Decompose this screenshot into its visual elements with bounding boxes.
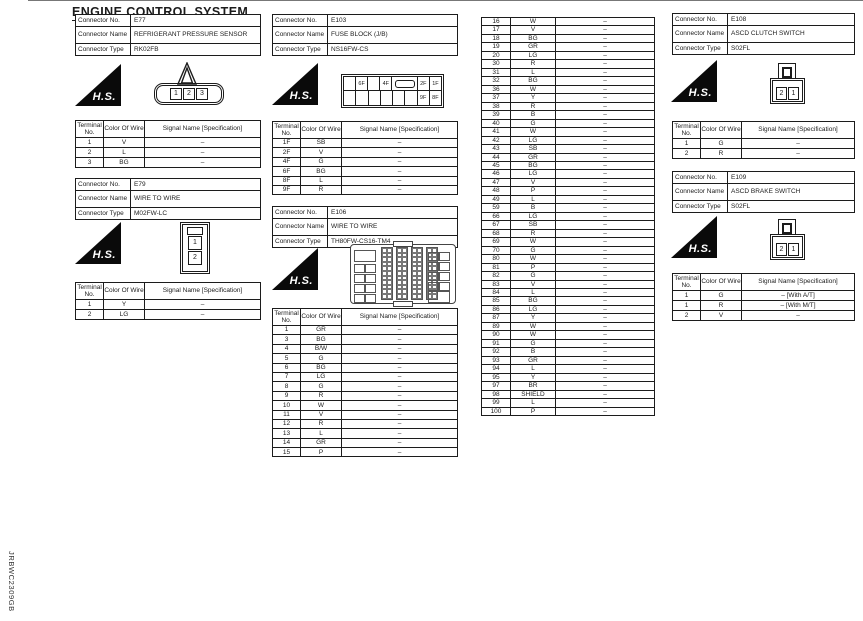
wire-color-header: Color Of Wire <box>701 274 742 291</box>
connector-name-value: ASCD BRAKE SWITCH <box>728 184 855 201</box>
terminal-table-e106-continued: 16W–17V–18BG–19GR–20LG–30R–31L–32BG–36W–… <box>481 17 655 416</box>
signal-name-header: Signal Name [Specification] <box>342 122 458 139</box>
connector-name-label: Connector Name <box>76 191 131 208</box>
terminal-no-cell: 46 <box>482 170 511 178</box>
terminal-no-cell: 92 <box>482 348 511 356</box>
fuse-row-top: 6F4F2F1F <box>344 77 441 91</box>
signal-cell: – <box>556 136 655 144</box>
connector-header-e77: Connector No. E77 Connector Name REFRIGE… <box>75 14 261 56</box>
wire-color-cell: B <box>511 111 556 119</box>
terminal-table-e109: Terminal No. Color Of Wire Signal Name [… <box>672 273 855 321</box>
wire-color-cell: LG <box>511 136 556 144</box>
wire-color-cell: W <box>511 128 556 136</box>
signal-cell: – <box>342 410 458 419</box>
wire-color-cell: Y <box>511 314 556 322</box>
connector-no-label: Connector No. <box>273 15 328 27</box>
table-row: 3BG– <box>273 335 458 344</box>
wire-color-cell: G <box>301 354 342 363</box>
terminal-no-cell: 40 <box>482 119 511 127</box>
signal-cell: – <box>342 176 458 185</box>
grid-cavity <box>428 252 452 291</box>
terminal-no-cell: 43 <box>482 145 511 153</box>
fuse-cavity-label: 1F <box>430 77 441 91</box>
fuse-cavity-label: 8F <box>430 91 441 105</box>
table-row: 41W– <box>482 128 655 136</box>
terminal-no-cell: 90 <box>482 331 511 339</box>
wire-color-cell: LG <box>511 170 556 178</box>
table-row: 4B/W– <box>273 344 458 353</box>
table-row: 7LG– <box>273 372 458 381</box>
table-row: 44GR– <box>482 153 655 161</box>
signal-cell: – <box>556 195 655 203</box>
signal-name-header: Signal Name [Specification] <box>742 274 855 291</box>
connector-type-label: Connector Type <box>76 44 131 56</box>
terminal-no-cell: 42 <box>482 136 511 144</box>
terminal-no-cell: 17 <box>482 26 511 34</box>
terminal-no-cell: 45 <box>482 161 511 169</box>
grid-cavity <box>354 274 365 283</box>
signal-cell: – <box>556 43 655 51</box>
table-row: 1V– <box>76 138 261 148</box>
signal-cell: – <box>556 170 655 178</box>
table-row: 69W– <box>482 238 655 246</box>
cavity-label: 1 <box>170 88 182 100</box>
wire-color-cell: LG <box>104 310 145 320</box>
signal-cell: – <box>342 448 458 457</box>
fuse-cavity <box>368 77 380 91</box>
signal-cell: – <box>145 138 261 148</box>
table-row: 47V– <box>482 178 655 186</box>
wire-color-cell: BG <box>104 158 145 168</box>
table-row: 66LG– <box>482 212 655 220</box>
signal-cell: – <box>556 339 655 347</box>
terminal-no-cell: 2 <box>673 149 701 159</box>
wire-color-cell: BG <box>511 34 556 42</box>
fuse-cavity <box>356 91 368 105</box>
fuse-cavity-label: 4F <box>380 77 392 91</box>
table-row: 98SHIELD– <box>482 390 655 398</box>
hs-logo-text: H.S. <box>290 275 313 287</box>
table-row: 40G– <box>482 119 655 127</box>
table-row: 2FV– <box>273 148 458 157</box>
fuse-cavity-label: 2F <box>418 77 430 91</box>
connector-no-value: E106 <box>328 207 458 219</box>
cavity-column: 12 <box>188 236 202 265</box>
grid-cavity <box>354 264 365 273</box>
terminal-no-cell: 6F <box>273 167 301 176</box>
table-row: 1G– [With A/T] <box>673 291 855 301</box>
signal-cell: – <box>556 297 655 305</box>
signal-cell: – <box>742 139 855 149</box>
hs-logo-text: H.S. <box>290 90 313 102</box>
wire-color-cell: W <box>511 331 556 339</box>
connector-name-value: ASCD CLUTCH SWITCH <box>728 26 855 43</box>
signal-cell: – <box>342 185 458 194</box>
signal-cell: – <box>342 326 458 335</box>
table-row: 59B– <box>482 204 655 212</box>
grid-cavity <box>381 247 393 300</box>
wire-color-header: Color Of Wire <box>701 122 742 139</box>
cavity-row: 123 <box>156 85 222 103</box>
hs-logo-text: H.S. <box>93 249 116 261</box>
wire-color-cell: SB <box>511 145 556 153</box>
wire-color-cell: BG <box>301 363 342 372</box>
wire-color-cell: SHIELD <box>511 390 556 398</box>
cavity-label: 1 <box>788 87 799 100</box>
connector-drawing-e77: 123 <box>147 62 227 108</box>
table-row: 32BG– <box>482 77 655 85</box>
wire-color-cell: SB <box>301 139 342 148</box>
connector-name-value: FUSE BLOCK (J/B) <box>328 27 458 44</box>
terminal-no-cell: 67 <box>482 221 511 229</box>
signal-cell: – <box>342 419 458 428</box>
terminal-no-cell: 84 <box>482 289 511 297</box>
wire-color-cell: W <box>301 401 342 410</box>
connector-body: 12 <box>182 224 208 272</box>
table-row: 45BG– <box>482 161 655 169</box>
signal-cell: – <box>342 335 458 344</box>
signal-cell: – [With A/T] <box>742 291 855 301</box>
terminal-no-cell: 11 <box>273 410 301 419</box>
signal-cell: – <box>556 373 655 381</box>
terminal-no-cell: 1 <box>673 291 701 301</box>
table-row: 4FG– <box>273 157 458 166</box>
wire-color-cell: BG <box>301 335 342 344</box>
table-row: 85BG– <box>482 297 655 305</box>
terminal-no-cell: 70 <box>482 246 511 254</box>
table-row: 80W– <box>482 255 655 263</box>
wire-color-cell: V <box>511 178 556 186</box>
terminal-no-cell: 18 <box>482 34 511 42</box>
terminal-no-cell: 41 <box>482 128 511 136</box>
signal-name-header: Signal Name [Specification] <box>145 283 261 300</box>
signal-name-header: Signal Name [Specification] <box>742 122 855 139</box>
grid-cavity <box>428 291 450 303</box>
signal-cell: – <box>556 331 655 339</box>
signal-cell: – <box>556 322 655 330</box>
cavity-row: 21 <box>772 80 803 102</box>
wire-color-cell: GR <box>511 356 556 364</box>
grid-cavity <box>365 264 376 273</box>
connector-type-label: Connector Type <box>673 201 728 213</box>
signal-cell: – <box>556 246 655 254</box>
wire-color-cell: V <box>301 148 342 157</box>
hs-logo: H.S. <box>671 60 717 102</box>
connector-body: 21 <box>770 234 805 260</box>
terminal-no-cell: 49 <box>482 195 511 203</box>
fuse-cavity <box>344 77 356 91</box>
signal-cell: – <box>145 310 261 320</box>
terminal-no-header: Terminal No. <box>673 122 701 139</box>
hs-logo: H.S. <box>272 63 318 105</box>
terminal-no-cell: 44 <box>482 153 511 161</box>
signal-cell: – <box>556 178 655 186</box>
connector-no-label: Connector No. <box>76 15 131 27</box>
terminal-no-cell: 87 <box>482 314 511 322</box>
table-row: 30R– <box>482 60 655 68</box>
table-row: 92B– <box>482 348 655 356</box>
table-row: 3BG– <box>76 158 261 168</box>
connector-name-label: Connector Name <box>673 184 728 201</box>
signal-cell: – <box>556 229 655 237</box>
hs-logo: H.S. <box>671 216 717 258</box>
terminal-no-cell: 89 <box>482 322 511 330</box>
wire-color-cell: B <box>511 204 556 212</box>
terminal-no-cell: 68 <box>482 229 511 237</box>
wire-color-cell: V <box>701 311 742 321</box>
wire-color-cell: P <box>511 407 556 415</box>
fuse-cavity <box>381 91 393 105</box>
fuse-cavity <box>344 91 356 105</box>
cavity-label: 3 <box>196 88 208 100</box>
table-row: 83V– <box>482 280 655 288</box>
signal-cell: – <box>145 300 261 310</box>
grid-cavity <box>365 274 376 283</box>
signal-cell: – <box>556 111 655 119</box>
table-row: 1FSB– <box>273 139 458 148</box>
signal-cell: – <box>342 372 458 381</box>
connector-type-value: NS16FW-CS <box>328 44 458 56</box>
signal-cell: – <box>556 51 655 59</box>
table-row: 91G– <box>482 339 655 347</box>
terminal-no-cell: 2 <box>76 310 104 320</box>
signal-cell: – <box>556 399 655 407</box>
terminal-no-header: Terminal No. <box>273 122 301 139</box>
signal-cell: – <box>342 438 458 447</box>
wire-color-cell: GR <box>301 438 342 447</box>
table-row: 46LG– <box>482 170 655 178</box>
table-row: 93GR– <box>482 356 655 364</box>
table-row: 87Y– <box>482 314 655 322</box>
terminal-no-cell: 1 <box>273 326 301 335</box>
signal-cell: – <box>742 311 855 321</box>
table-row: 70G– <box>482 246 655 254</box>
terminal-no-cell: 98 <box>482 390 511 398</box>
grid-cavity <box>439 262 450 271</box>
terminal-table-e77: Terminal No. Color Of Wire Signal Name [… <box>75 120 261 168</box>
terminal-no-cell: 4 <box>273 344 301 353</box>
table-row: 84L– <box>482 289 655 297</box>
signal-cell: – <box>556 94 655 102</box>
hs-logo: H.S. <box>75 222 121 264</box>
grid-cavity <box>354 284 365 293</box>
fuse-cavity <box>392 77 417 91</box>
wire-color-cell: Y <box>511 373 556 381</box>
signal-cell: – <box>556 26 655 34</box>
table-row: 11V– <box>273 410 458 419</box>
table-row: 1GR– <box>273 326 458 335</box>
cavity-label: 2 <box>188 251 202 265</box>
terminal-no-cell: 9 <box>273 391 301 400</box>
terminal-no-cell: 5 <box>273 354 301 363</box>
wire-color-cell: BG <box>301 167 342 176</box>
table-row: 42LG– <box>482 136 655 144</box>
grid-cavity <box>428 282 439 291</box>
fuse-cavity-label: 9F <box>418 91 430 105</box>
signal-cell: – <box>556 204 655 212</box>
terminal-no-cell: 100 <box>482 407 511 415</box>
hs-logo-text: H.S. <box>689 243 712 255</box>
grid-cavity <box>354 250 376 262</box>
terminal-no-cell: 94 <box>482 365 511 373</box>
connector-type-label: Connector Type <box>76 208 131 220</box>
signal-cell: – <box>556 212 655 220</box>
connector-type-value: M02FW-LC <box>131 208 261 220</box>
terminal-no-cell: 15 <box>273 448 301 457</box>
wire-color-cell: W <box>511 255 556 263</box>
fuse-slot-icon <box>395 80 415 88</box>
connector-body: 21 <box>770 78 805 104</box>
connector-no-label: Connector No. <box>273 207 328 219</box>
terminal-no-cell: 12 <box>273 419 301 428</box>
connector-type-value: S02FL <box>728 43 855 55</box>
connector-header-e108: Connector No. E108 Connector Name ASCD C… <box>672 13 855 55</box>
terminal-no-cell: 31 <box>482 68 511 76</box>
terminal-no-cell: 1F <box>273 139 301 148</box>
table-row: 94L– <box>482 365 655 373</box>
signal-cell: – <box>556 85 655 93</box>
signal-cell: – <box>556 280 655 288</box>
wire-color-cell: BG <box>511 161 556 169</box>
table-row: 19GR– <box>482 43 655 51</box>
table-row: 38R– <box>482 102 655 110</box>
table-row: 9FR– <box>273 185 458 194</box>
terminal-no-cell: 82 <box>482 272 511 280</box>
wire-color-cell: G <box>511 119 556 127</box>
terminal-no-cell: 80 <box>482 255 511 263</box>
wire-color-cell: W <box>511 18 556 26</box>
signal-cell: – <box>556 289 655 297</box>
wire-color-cell: L <box>104 148 145 158</box>
connector-no-label: Connector No. <box>673 172 728 184</box>
wire-color-cell: L <box>511 365 556 373</box>
wire-color-cell: R <box>301 419 342 428</box>
terminal-no-cell: 48 <box>482 187 511 195</box>
connector-no-value: E109 <box>728 172 855 184</box>
connector-name-value: WIRE TO WIRE <box>328 219 458 236</box>
table-row: 8G– <box>273 382 458 391</box>
table-row: 100P– <box>482 407 655 415</box>
fuse-row-bottom: 9F8F <box>344 91 441 105</box>
signal-cell: – <box>556 365 655 373</box>
connector-no-label: Connector No. <box>673 14 728 26</box>
wire-color-cell: BG <box>511 297 556 305</box>
signal-cell: – <box>145 158 261 168</box>
wire-color-cell: G <box>701 291 742 301</box>
signal-cell: – <box>556 128 655 136</box>
terminal-no-cell: 95 <box>482 373 511 381</box>
hs-logo: H.S. <box>75 64 121 106</box>
connector-header-e79: Connector No. E79 Connector Name WIRE TO… <box>75 178 261 220</box>
signal-cell: – <box>556 305 655 313</box>
wire-color-cell: B/W <box>301 344 342 353</box>
wire-color-cell: R <box>511 60 556 68</box>
cavity-label: 2 <box>776 87 787 100</box>
signal-cell: – <box>556 119 655 127</box>
terminal-no-cell: 38 <box>482 102 511 110</box>
connector-no-value: E79 <box>131 179 261 191</box>
terminal-no-cell: 32 <box>482 77 511 85</box>
fuse-cavity <box>369 91 381 105</box>
connector-no-value: E103 <box>328 15 458 27</box>
signal-cell: – <box>145 148 261 158</box>
terminal-no-cell: 2F <box>273 148 301 157</box>
grid-cavity <box>417 294 422 299</box>
table-row: 10W– <box>273 401 458 410</box>
table-row: 20LG– <box>482 51 655 59</box>
connector-type-value: RK02FB <box>131 44 261 56</box>
table-row: 2V– <box>673 311 855 321</box>
terminal-no-cell: 1 <box>76 138 104 148</box>
grid-cavity <box>428 262 439 271</box>
table-row: 2R– <box>673 149 855 159</box>
grid-cavity <box>387 294 392 299</box>
connector-name-label: Connector Name <box>673 26 728 43</box>
terminal-no-cell: 2 <box>76 148 104 158</box>
terminal-no-cell: 86 <box>482 305 511 313</box>
wire-color-cell: GR <box>301 326 342 335</box>
terminal-no-cell: 4F <box>273 157 301 166</box>
connector-drawing-e108: 21 <box>770 63 804 103</box>
terminal-no-cell: 2 <box>673 311 701 321</box>
grid-cavity <box>428 252 439 261</box>
wire-color-cell: L <box>301 176 342 185</box>
table-row: 6FBG– <box>273 167 458 176</box>
terminal-no-cell: 1 <box>76 300 104 310</box>
table-row: 6BG– <box>273 363 458 372</box>
table-row: 15P– <box>273 448 458 457</box>
table-row: 5G– <box>273 354 458 363</box>
terminal-no-header: Terminal No. <box>76 283 104 300</box>
table-row: 14GR– <box>273 438 458 447</box>
connector-name-label: Connector Name <box>273 27 328 44</box>
connector-name-label: Connector Name <box>76 27 131 44</box>
table-row: 95Y– <box>482 373 655 381</box>
wire-color-cell: R <box>511 229 556 237</box>
connector-drawing-e106 <box>350 244 456 304</box>
wire-color-cell: GR <box>511 43 556 51</box>
connector-no-value: E108 <box>728 14 855 26</box>
signal-cell: – <box>342 148 458 157</box>
grid-cavity <box>396 247 408 300</box>
signal-cell: – <box>342 157 458 166</box>
table-row: 67SB– <box>482 221 655 229</box>
signal-cell: – <box>556 255 655 263</box>
grid-cavity <box>439 252 450 261</box>
table-row: 68R– <box>482 229 655 237</box>
table-row: 31L– <box>482 68 655 76</box>
connector-name-value: WIRE TO WIRE <box>131 191 261 208</box>
hs-logo-text: H.S. <box>689 87 712 99</box>
table-row: 90W– <box>482 331 655 339</box>
wire-color-cell: R <box>301 185 342 194</box>
signal-cell: – <box>556 102 655 110</box>
table-row: 49L– <box>482 195 655 203</box>
terminal-no-cell: 8F <box>273 176 301 185</box>
terminal-no-cell: 39 <box>482 111 511 119</box>
connector-type-label: Connector Type <box>273 44 328 56</box>
signal-cell: – <box>342 382 458 391</box>
cavity-label: 2 <box>776 243 787 256</box>
terminal-table-e106: Terminal No. Color Of Wire Signal Name [… <box>272 308 458 457</box>
table-row: 1Y– <box>76 300 261 310</box>
signal-cell: – <box>342 429 458 438</box>
grid-cavity <box>365 284 376 293</box>
lock-tab-icon <box>176 62 198 85</box>
wire-color-cell: W <box>511 238 556 246</box>
table-row: 37Y– <box>482 94 655 102</box>
wire-color-cell: L <box>511 195 556 203</box>
